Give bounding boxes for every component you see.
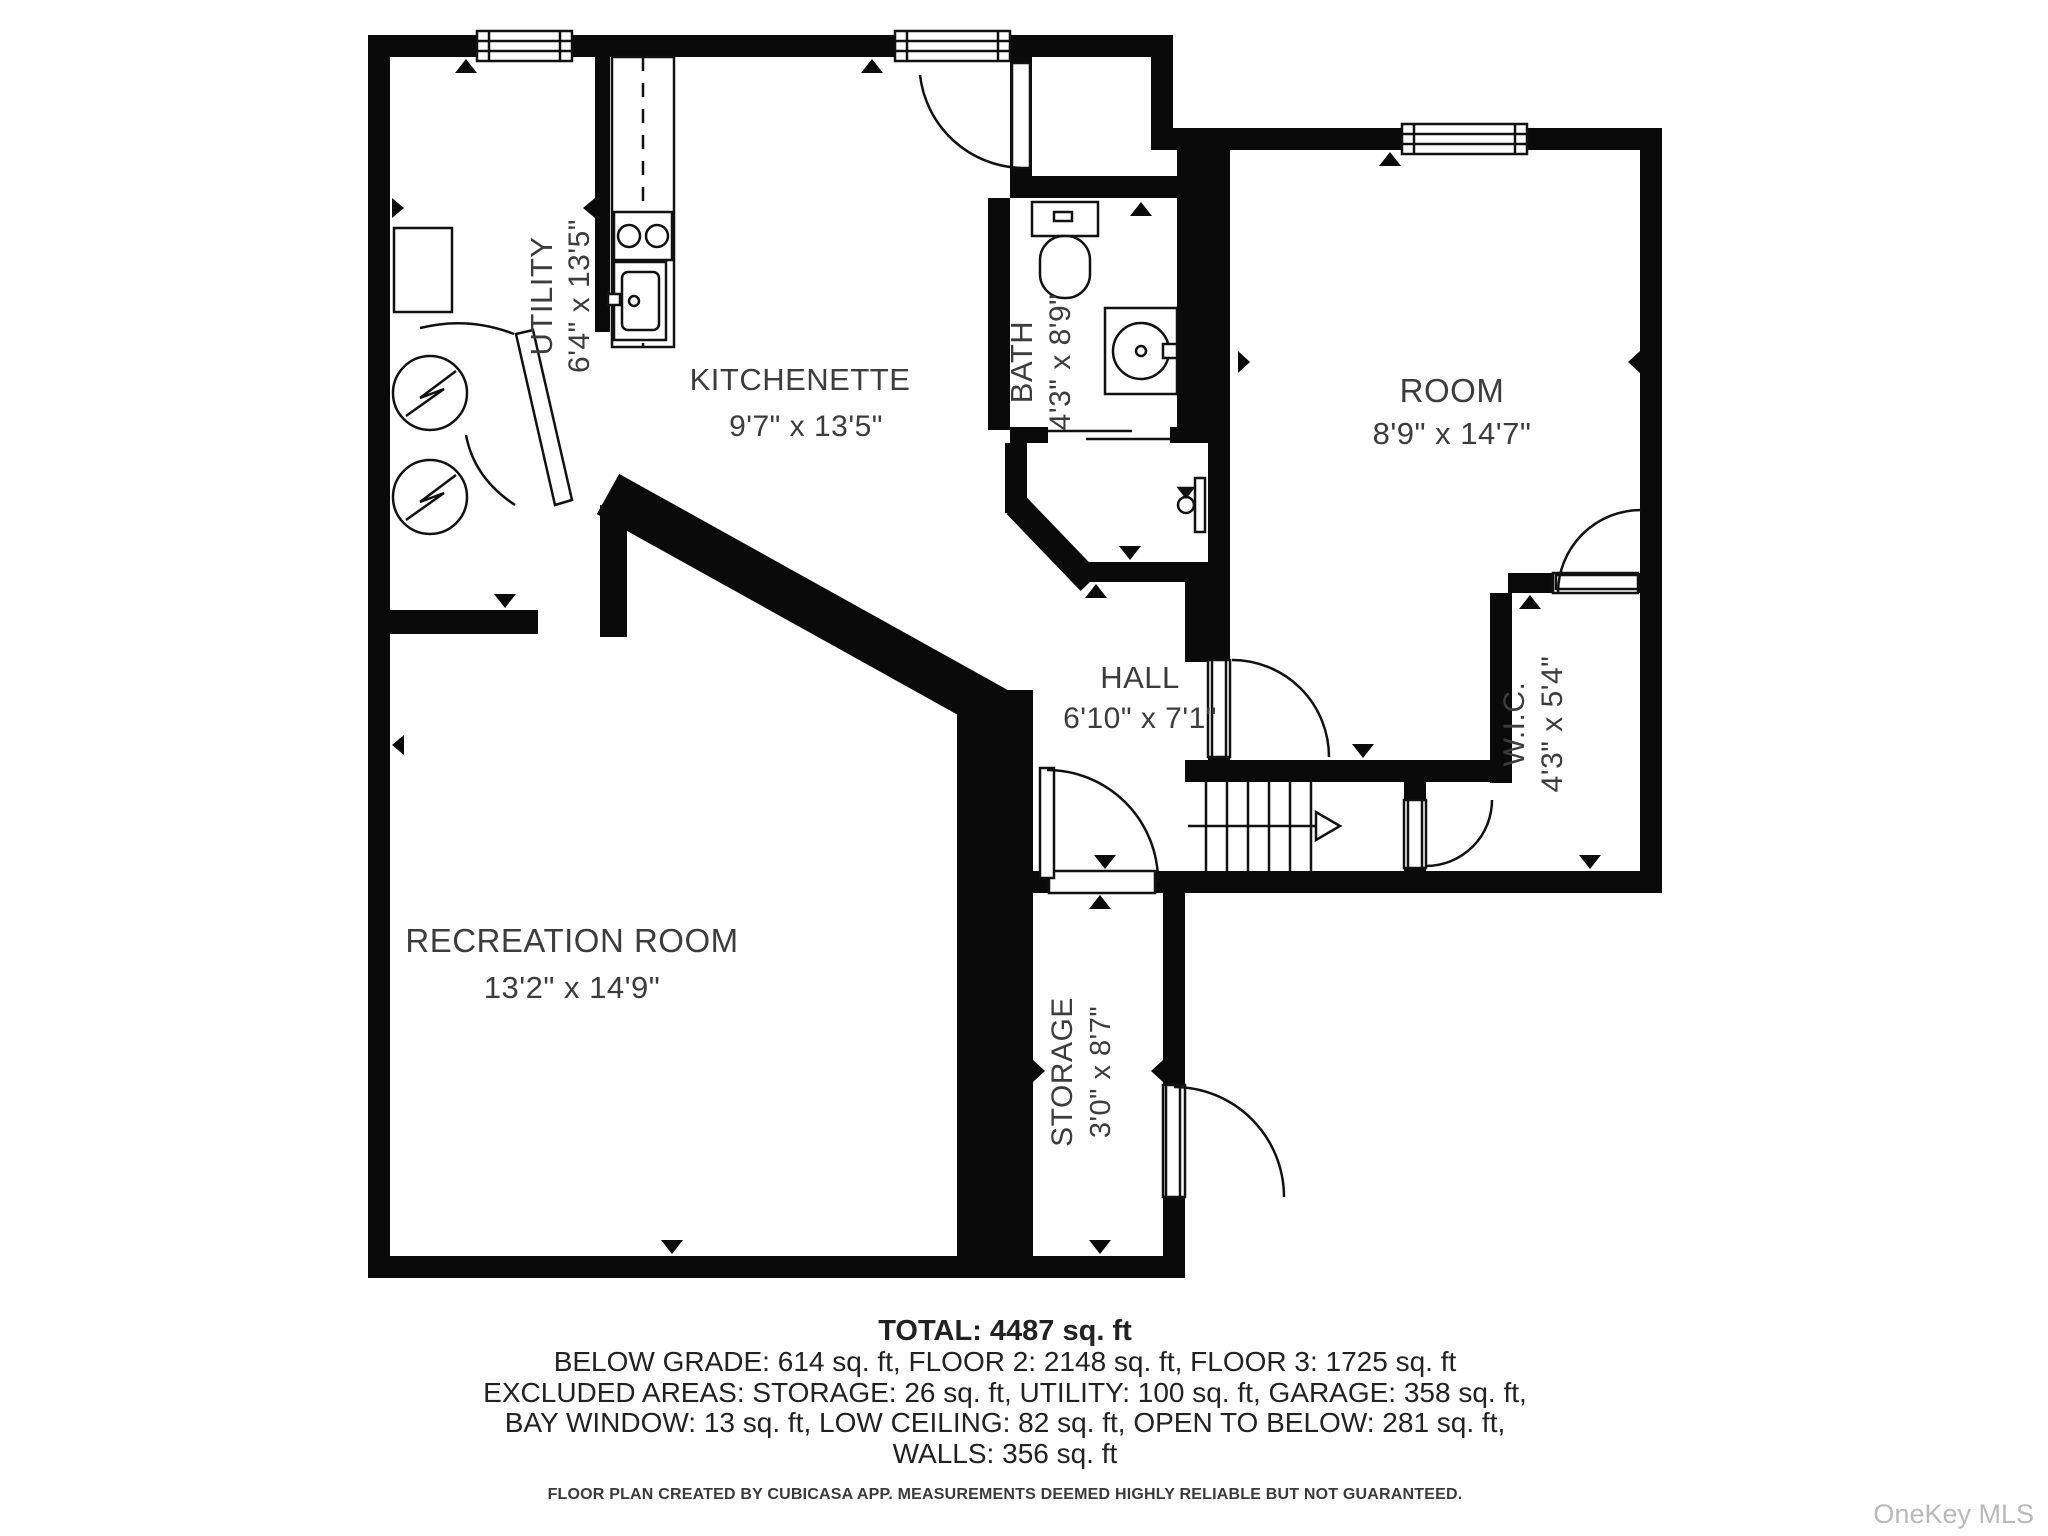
floor-plan-drawing: UTILITY 6'4" x 13'5" KITCHENETTE 9'7" x …: [0, 0, 2048, 1536]
label-bath-dims: 4'3" x 8'9": [1044, 294, 1077, 431]
window-kitchenette: [895, 31, 1010, 61]
area-summary: TOTAL: 4487 sq. ft BELOW GRADE: 614 sq. …: [0, 1316, 2010, 1469]
label-storage-dims: 3'0" x 8'7": [1085, 1006, 1117, 1138]
stairs-direction-arrow-icon: [1316, 812, 1340, 840]
label-recreation-room: RECREATION ROOM: [405, 922, 738, 959]
summary-line-walls: WALLS: 356 sq. ft: [0, 1439, 2010, 1470]
shower-icon: [1178, 478, 1205, 532]
label-wic-dims: 4'3" x 5'4": [1536, 656, 1569, 793]
label-recreation-room-dims: 13'2" x 14'9": [484, 970, 661, 1005]
label-storage: STORAGE: [1046, 997, 1079, 1147]
door-room-wic: [1553, 510, 1641, 593]
floor-plan-page: UTILITY 6'4" x 13'5" KITCHENETTE 9'7" x …: [0, 0, 2048, 1536]
water-heater-icon: [394, 228, 452, 312]
window-utility: [477, 31, 572, 61]
door-hall-storage: [1040, 768, 1158, 893]
label-kitchenette-dims: 9'7" x 13'5": [729, 410, 883, 443]
onekey-mls-watermark: OneKey MLS: [1873, 1499, 2034, 1530]
label-bath: BATH: [1004, 321, 1039, 403]
label-kitchenette: KITCHENETTE: [690, 362, 911, 397]
label-wic: W.I.C.: [1498, 682, 1531, 767]
stairs: [1188, 782, 1340, 871]
door-small-room: [920, 63, 1030, 168]
dryer-icon: [393, 460, 467, 534]
label-utility-dims: 6'4" x 13'5": [563, 219, 596, 373]
label-utility: UTILITY: [524, 237, 559, 356]
label-hall: HALL: [1100, 660, 1180, 695]
total-area: TOTAL: 4487 sq. ft: [0, 1316, 2010, 1347]
bath-sink-icon: [1105, 308, 1177, 394]
toilet-icon: [1032, 202, 1098, 298]
washer-icon: [393, 356, 467, 430]
label-hall-dims: 6'10" x 7'1": [1063, 702, 1217, 735]
door-storage-exterior: [1163, 1085, 1284, 1197]
summary-line-floors: BELOW GRADE: 614 sq. ft, FLOOR 2: 2148 s…: [0, 1347, 2010, 1378]
disclaimer-text: FLOOR PLAN CREATED BY CUBICASA APP. MEAS…: [0, 1486, 2010, 1504]
window-room: [1402, 124, 1527, 154]
door-landing-wic: [1404, 800, 1492, 868]
kitchen-sink-icon: [608, 262, 666, 340]
summary-line-baywindow: BAY WINDOW: 13 sq. ft, LOW CEILING: 82 s…: [0, 1408, 2010, 1439]
kitchen-counter: [608, 57, 674, 347]
door-hall-room: [1208, 660, 1329, 757]
summary-line-excluded: EXCLUDED AREAS: STORAGE: 26 sq. ft, UTIL…: [0, 1378, 2010, 1409]
label-room: ROOM: [1400, 372, 1505, 409]
label-room-dims: 8'9" x 14'7": [1373, 416, 1532, 451]
